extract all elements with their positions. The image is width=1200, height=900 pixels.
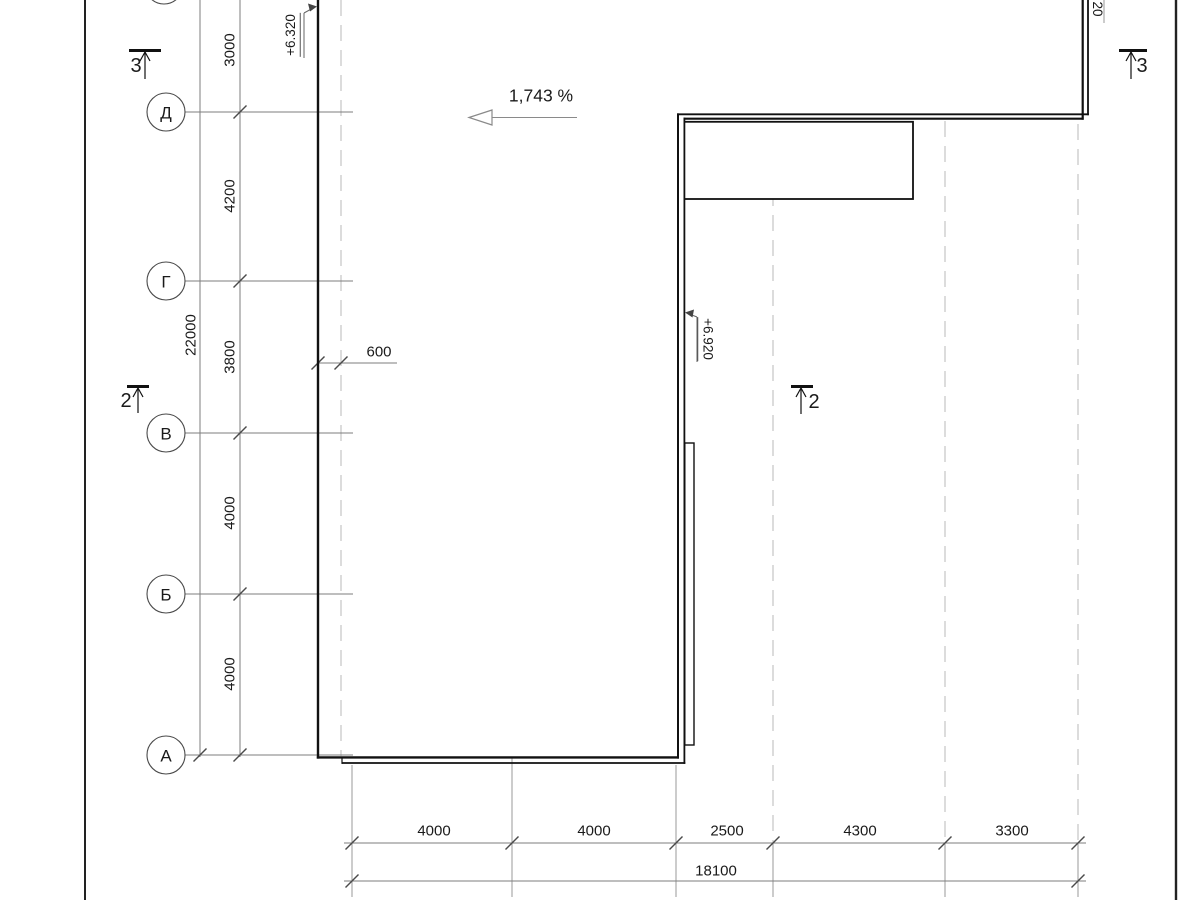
elevation-label-top-right-partial: 20 [1090,1,1104,16]
slope-label: 1,743 % [509,87,573,105]
section-label-3-right: 3 [1136,56,1147,76]
elevation-leader-mid [685,310,697,363]
dim-col-4000-b: 4000 [577,824,610,839]
axis-row-lines [185,112,353,755]
left-dimension-lines [200,0,240,757]
dim-col-2500: 2500 [710,824,743,839]
axis-label-b: Б [160,587,171,604]
roof-plan-drawing: Д Г В Б А 3000 4200 3800 4000 4000 22000… [0,0,1200,900]
section-label-3-left: 3 [130,56,141,76]
dim-row-4000-b: 4000 [223,657,238,690]
section-label-2-left: 2 [120,391,131,411]
slope-arrow [469,110,577,125]
elevation-label-top-left: +6.320 [284,13,301,57]
axis-circle-cropped [145,0,183,4]
dim-col-4000-a: 4000 [417,824,450,839]
dim-row-4200: 4200 [223,179,238,212]
wall-strip-outline [685,443,694,745]
axis-label-v: В [160,426,171,443]
dim-row-4000-a: 4000 [223,496,238,529]
dim-row-total-22000: 22000 [184,314,199,356]
plan-linework [0,0,1200,900]
axis-label-g: Г [161,274,170,291]
dim-col-4300: 4300 [843,824,876,839]
dim-row-3000: 3000 [223,33,238,66]
sheet-border [85,0,1176,900]
elevation-leader-top-left [304,4,317,59]
dim-col-total-18100: 18100 [695,864,737,879]
elevation-label-mid: +6.920 [698,317,715,361]
axis-label-d: Д [160,105,172,122]
section-label-2-right: 2 [808,392,819,412]
building-outline [317,0,1089,764]
dim-row-3800: 3800 [223,340,238,373]
axis-label-a: А [160,748,171,765]
dim-offset-600: 600 [366,345,391,360]
canopy-outline [684,122,913,199]
dim-col-3300: 3300 [995,824,1028,839]
